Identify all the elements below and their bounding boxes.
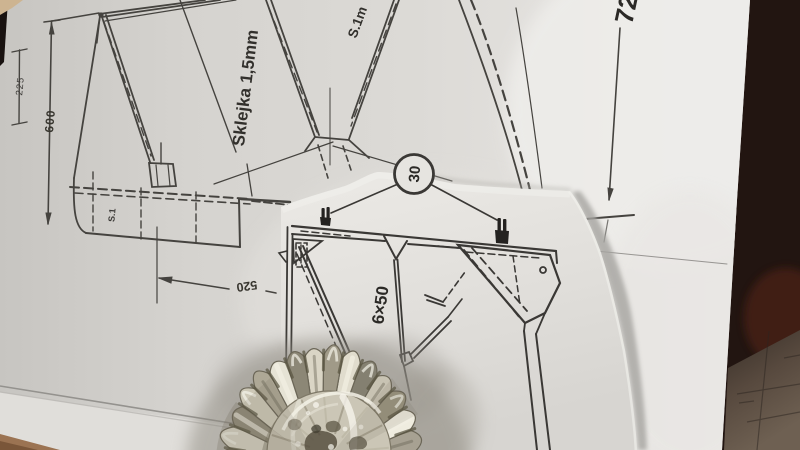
svg-text:520: 520	[236, 278, 259, 295]
svg-text:600: 600	[42, 109, 58, 133]
svg-text:30: 30	[406, 165, 424, 183]
svg-text:S.1: S.1	[106, 208, 117, 222]
svg-text:225: 225	[14, 76, 27, 96]
